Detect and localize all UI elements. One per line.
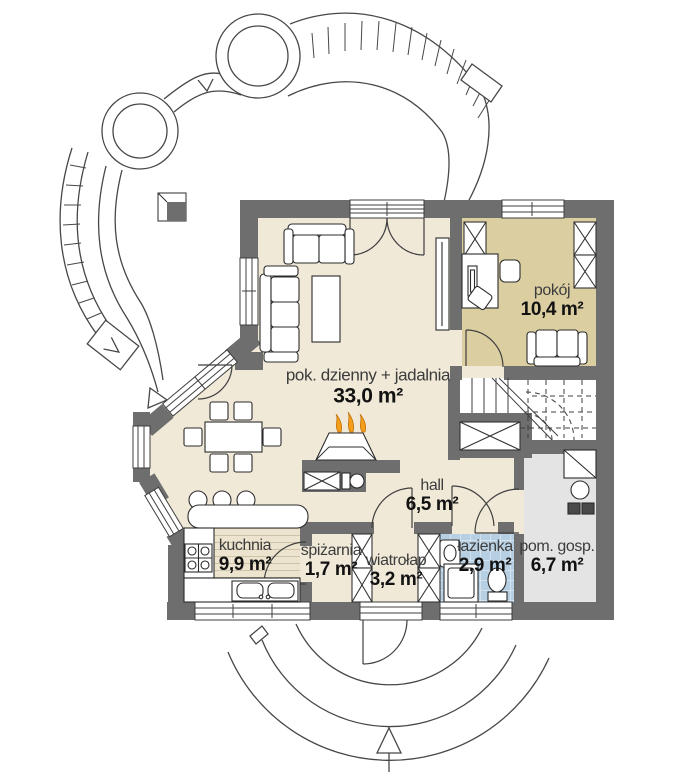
pergola-column-inner bbox=[113, 104, 167, 158]
pergola-band-west bbox=[87, 166, 167, 408]
shaft bbox=[574, 255, 596, 288]
wall-segment bbox=[448, 380, 460, 460]
dining-table bbox=[205, 422, 262, 452]
kitchen-sink bbox=[232, 581, 298, 601]
coffee-table bbox=[312, 276, 340, 342]
wall-segment bbox=[450, 218, 462, 330]
window bbox=[502, 200, 564, 218]
porch-end-cap bbox=[250, 626, 268, 644]
fireplace-base bbox=[302, 460, 400, 473]
wall-segment bbox=[240, 200, 350, 218]
wall-segment bbox=[514, 454, 524, 490]
rafter-arc bbox=[288, 13, 502, 202]
water-heater bbox=[571, 481, 589, 499]
wall-segment bbox=[450, 366, 462, 380]
shaft bbox=[460, 422, 520, 450]
wall-segment bbox=[240, 218, 258, 258]
direction-arrow-icon bbox=[377, 726, 401, 772]
wall-segment bbox=[300, 582, 312, 602]
shaft bbox=[352, 534, 372, 568]
porch-arc bbox=[296, 624, 482, 685]
wall-segment bbox=[512, 602, 614, 620]
chair bbox=[234, 402, 252, 420]
shaft bbox=[352, 568, 372, 602]
arc-end-cap bbox=[461, 64, 502, 102]
wall-segment bbox=[133, 412, 150, 426]
wall-segment bbox=[235, 352, 263, 370]
kitchen-bar-counter bbox=[188, 505, 308, 528]
wall-segment bbox=[300, 522, 374, 534]
pergola-post bbox=[158, 193, 186, 221]
front-door-threshold bbox=[360, 602, 422, 620]
shaft bbox=[574, 222, 596, 255]
window bbox=[440, 602, 512, 620]
door-swing bbox=[363, 620, 407, 664]
wall-segment bbox=[300, 534, 312, 546]
shaft bbox=[304, 472, 340, 490]
floor-plan-page: pok. dzienny + jadalnia 33,0 m² pokój 10… bbox=[0, 0, 678, 781]
utility-box bbox=[568, 503, 580, 514]
pergola-gate-marker bbox=[87, 320, 139, 369]
window bbox=[240, 258, 258, 325]
floor-plan-drawing bbox=[0, 0, 678, 781]
chair bbox=[184, 428, 202, 446]
wall-segment bbox=[498, 522, 514, 534]
side-table bbox=[500, 260, 520, 282]
wall-segment bbox=[596, 200, 614, 620]
pergola-column-inner bbox=[228, 26, 288, 86]
wall-segment bbox=[504, 366, 596, 380]
sofa-two-seat bbox=[284, 224, 354, 264]
band-check-mark bbox=[198, 79, 213, 91]
wall-segment bbox=[414, 522, 452, 534]
hatched-arc bbox=[60, 148, 110, 336]
shaft bbox=[464, 222, 486, 256]
shaft bbox=[418, 568, 440, 602]
fireplace-duct bbox=[342, 473, 350, 489]
entrance-porch bbox=[228, 624, 549, 772]
wall-segment bbox=[424, 200, 502, 218]
window bbox=[133, 426, 150, 468]
window bbox=[195, 602, 310, 620]
chair bbox=[263, 428, 281, 446]
bath-sink bbox=[440, 540, 460, 567]
sofa-three-seat bbox=[260, 266, 299, 362]
toilet bbox=[488, 568, 507, 601]
wall-segment bbox=[422, 602, 440, 620]
french-door-threshold bbox=[350, 200, 424, 218]
chair bbox=[210, 402, 228, 420]
sofa-two-seat bbox=[527, 330, 587, 366]
chair bbox=[234, 454, 252, 472]
boiler bbox=[564, 450, 596, 478]
wall-segment bbox=[514, 534, 524, 602]
porch-arc bbox=[262, 640, 516, 727]
wall-segment bbox=[460, 413, 532, 422]
shaft bbox=[418, 534, 440, 568]
wall-segment bbox=[310, 602, 360, 620]
fireplace-flue bbox=[350, 474, 364, 488]
stove bbox=[185, 544, 212, 572]
utility-box bbox=[582, 503, 594, 514]
washing-machine bbox=[444, 564, 478, 602]
chair bbox=[210, 454, 228, 472]
